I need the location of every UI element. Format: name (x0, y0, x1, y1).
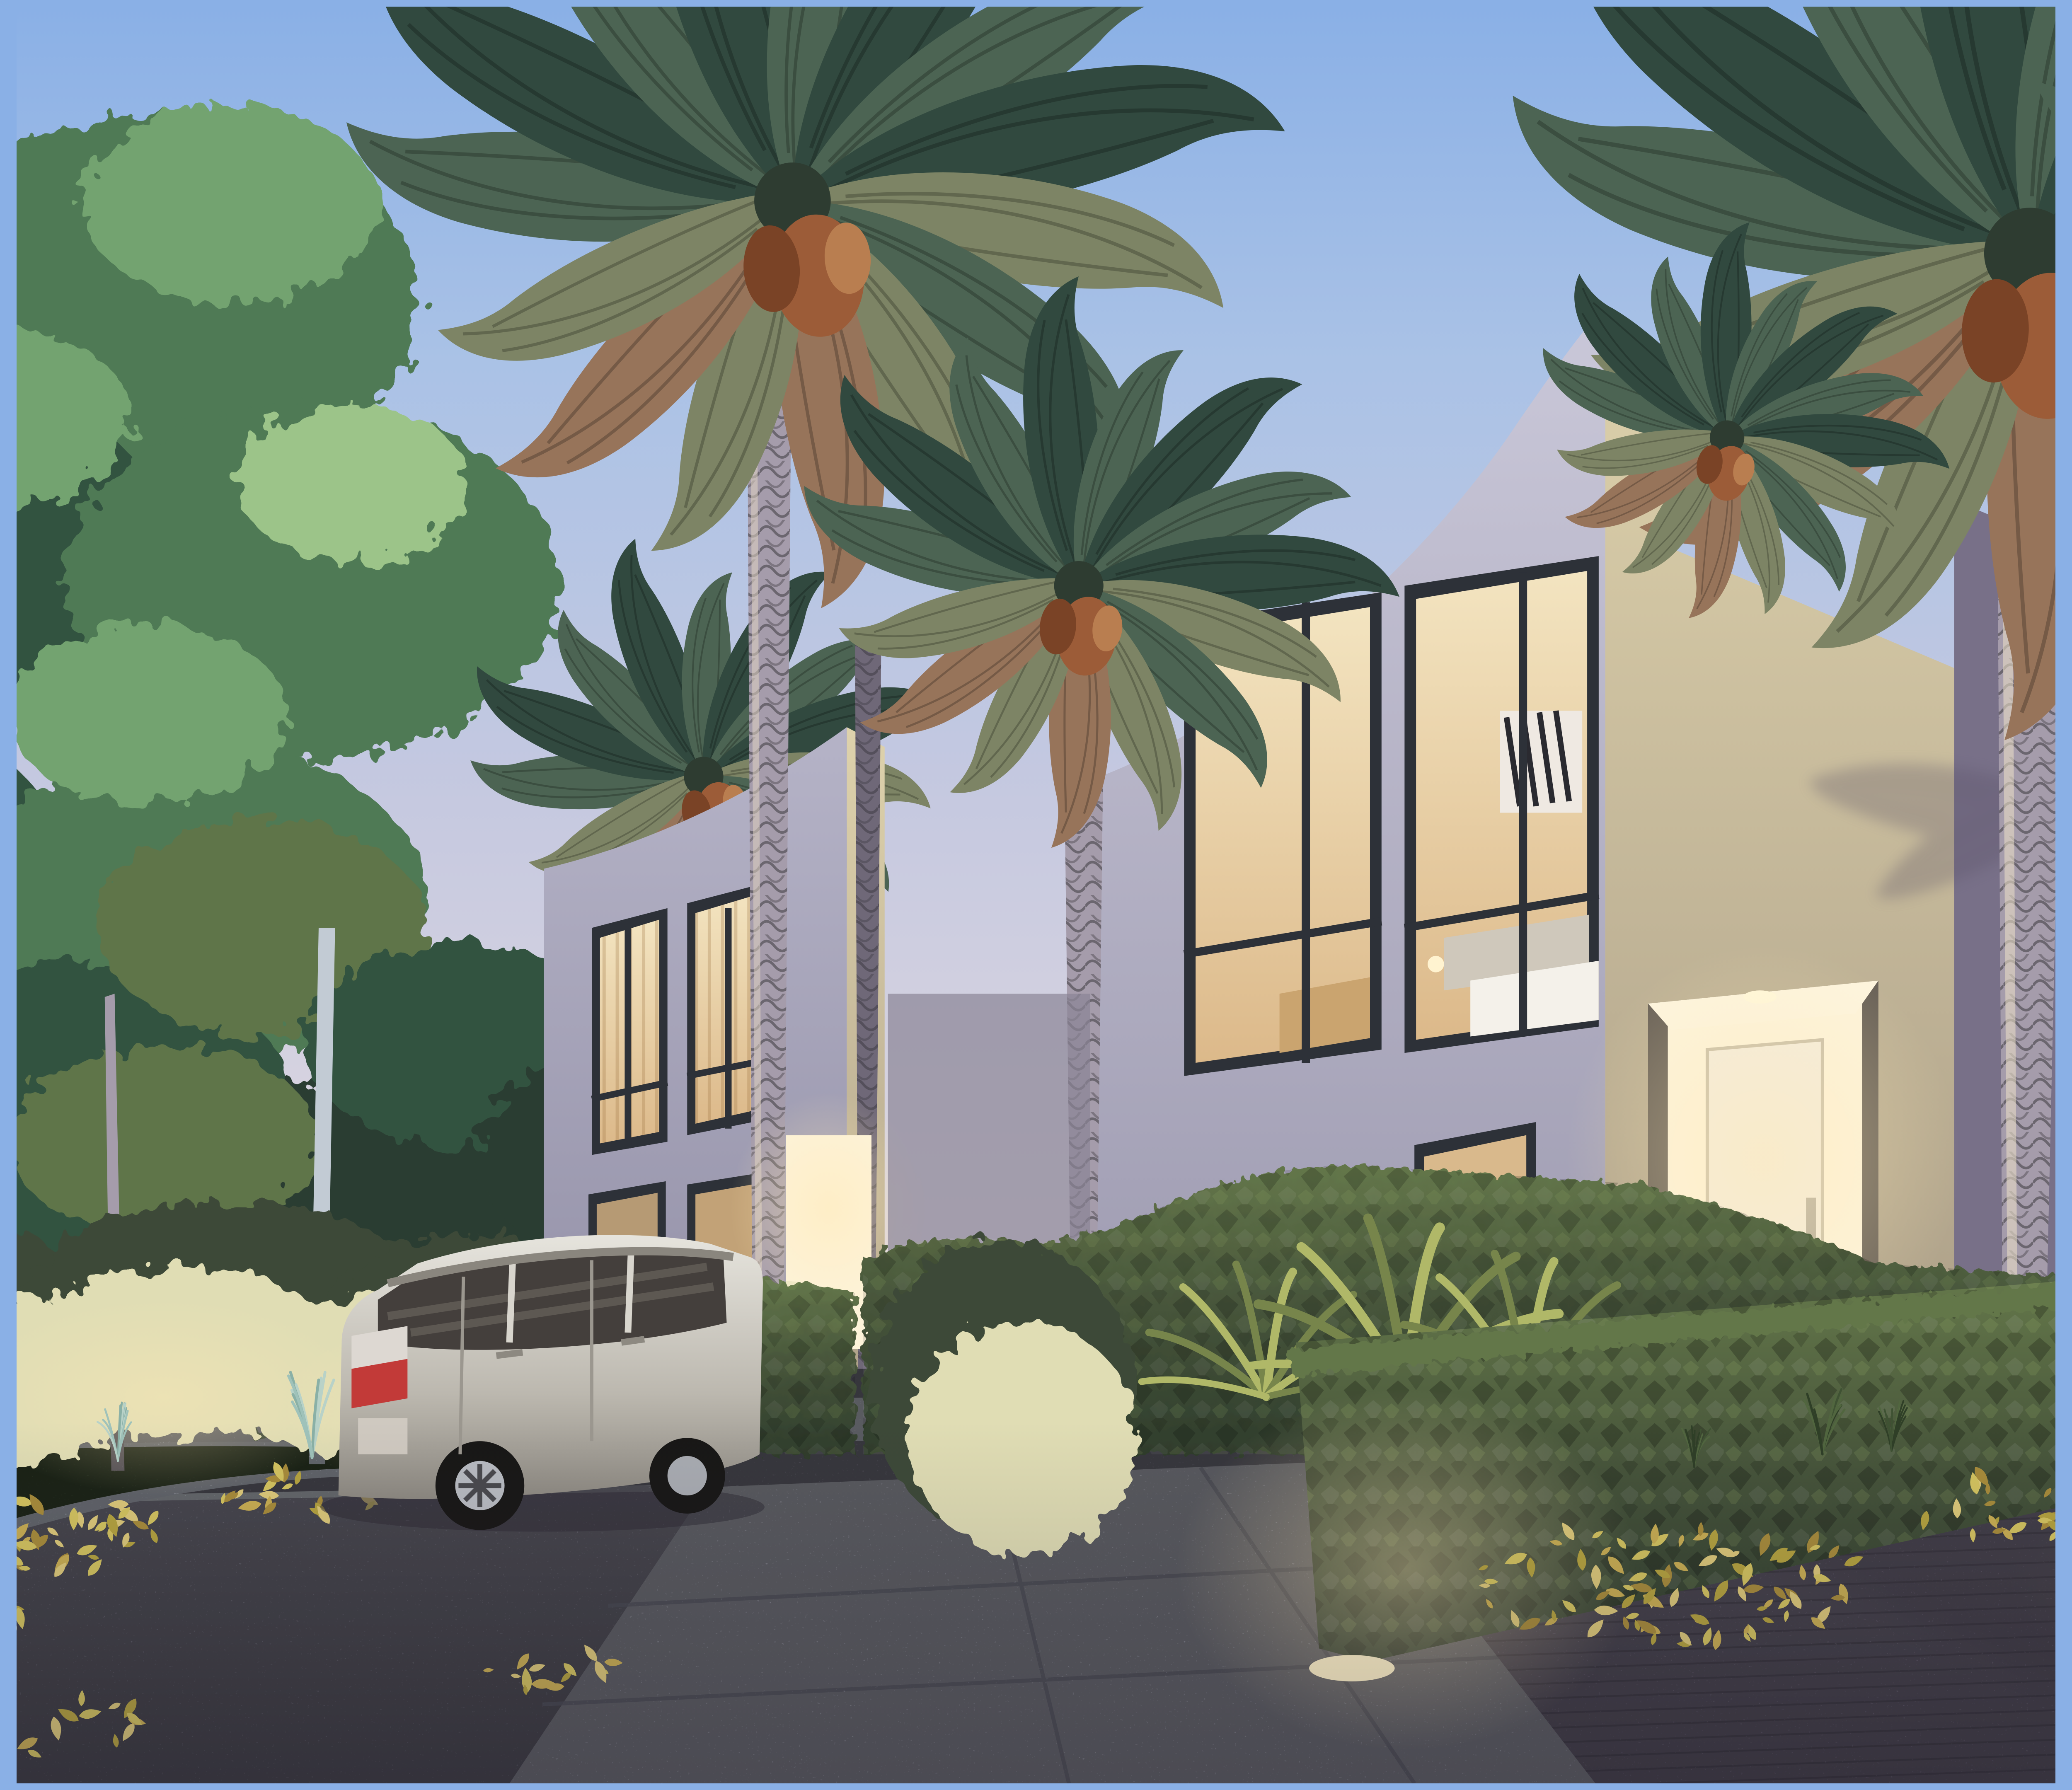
render-canvas: Dusk architectural rendering of modern c… (17, 7, 2055, 1783)
bedroom-window-2 (1404, 556, 1599, 1053)
bedside-lamp (1428, 956, 1444, 972)
foreground-vignette (17, 1422, 2055, 1783)
suv-taillight (351, 1326, 407, 1408)
villa-dusk-render: Dusk architectural rendering of modern c… (17, 7, 2055, 1783)
